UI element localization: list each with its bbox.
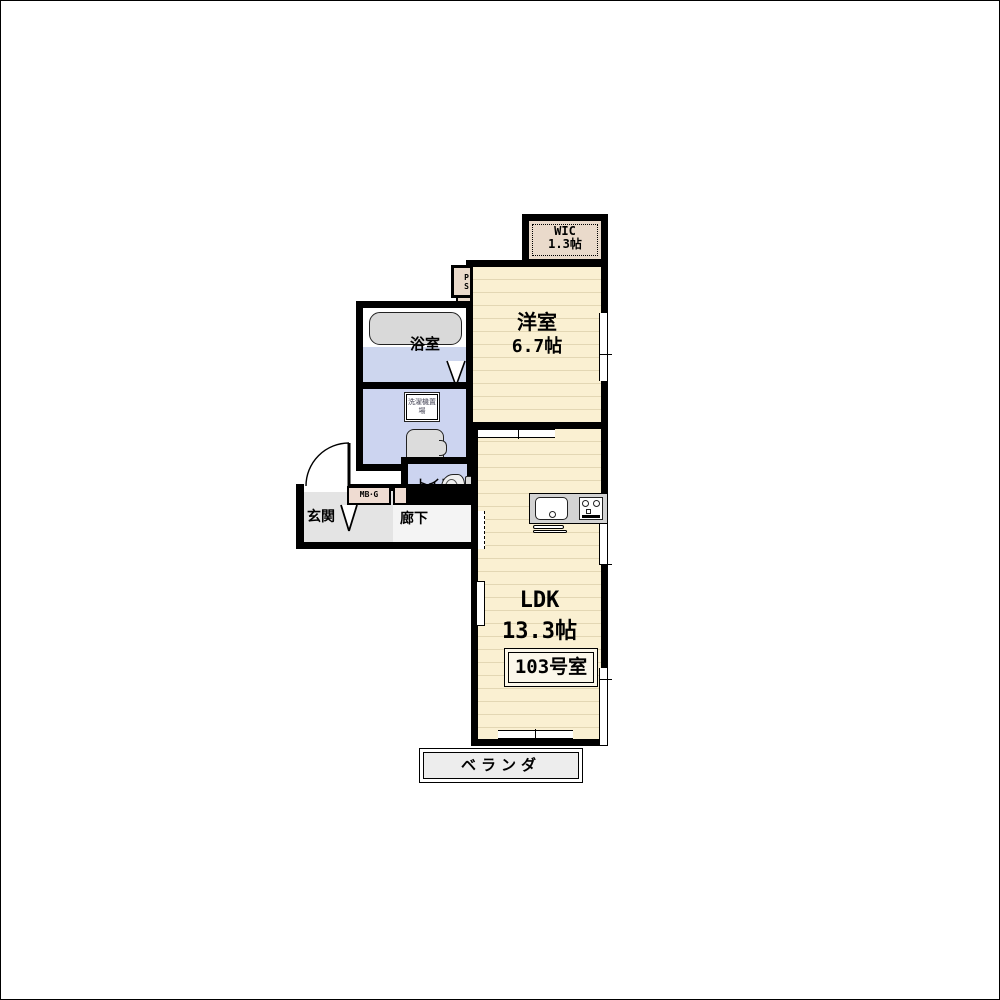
entrance-door-swing-icon xyxy=(298,441,354,487)
western-window xyxy=(599,313,608,381)
veranda-window-tick xyxy=(535,729,536,742)
room-bath: 浴室 xyxy=(356,301,473,389)
bath-label: 浴室 xyxy=(410,336,440,353)
kitchen-counter-return xyxy=(533,525,564,529)
kitchen-faucet xyxy=(549,511,556,518)
ldk-hallway-opening xyxy=(478,511,485,549)
western-room-label: 洋室 xyxy=(473,311,601,333)
veranda-label: ベランダ xyxy=(424,757,578,774)
meter-box: MB･G xyxy=(347,486,391,505)
room-ldk: LDK 13.3帖 103号室 xyxy=(471,422,608,746)
washbasin-bump xyxy=(439,440,447,456)
entrance-hall-block: MB･G 玄関 廊下 xyxy=(296,484,479,549)
shaft-box xyxy=(393,486,408,505)
laundry-label: 洗濯機置場 xyxy=(407,398,437,416)
pipe-space-box: PS xyxy=(451,265,473,298)
stove-icon xyxy=(579,497,603,520)
kitchen-counter xyxy=(529,493,608,524)
pipe-space-label: PS xyxy=(454,269,470,295)
ldk-size: 13.3帖 xyxy=(478,620,601,644)
stove-burner-left xyxy=(582,500,589,507)
sliding-door-tick xyxy=(518,426,519,439)
ldk-label: LDK xyxy=(478,589,601,613)
veranda-inner: ベランダ xyxy=(423,752,579,779)
veranda: ベランダ xyxy=(419,748,583,783)
western-room-size: 6.7帖 xyxy=(473,337,601,357)
floorplan: WIC 1.3帖 洋室 6.7帖 PS 浴室 洗濯 xyxy=(0,0,1000,1000)
unit-number-label: 103号室 xyxy=(509,657,593,678)
ldk-window-upper xyxy=(599,521,608,565)
wic-size: 1.3帖 xyxy=(529,238,601,251)
hallway-label: 廊下 xyxy=(400,512,428,527)
unit-number-inner: 103号室 xyxy=(508,652,594,683)
ldk-window-lower-tick xyxy=(600,679,612,680)
ldk-window-upper-tick xyxy=(600,564,612,565)
washing-machine-inner-border: 洗濯機置場 xyxy=(406,394,438,420)
unit-number-box: 103号室 xyxy=(504,648,598,687)
stove-burner-small xyxy=(586,509,591,514)
room-wic: WIC 1.3帖 xyxy=(522,214,608,266)
western-window-tick xyxy=(600,354,612,355)
washing-machine-icon: 洗濯機置場 xyxy=(404,392,440,422)
meter-box-label: MB･G xyxy=(349,491,389,500)
entrance-step-door-icon xyxy=(338,504,360,533)
kitchen-counter-return2 xyxy=(533,530,567,533)
room-western: 洋室 6.7帖 xyxy=(466,260,608,431)
stove-grill xyxy=(582,515,600,518)
ldk-western-sliding-door xyxy=(478,429,555,438)
stove-burner-right xyxy=(593,500,600,507)
kitchen-sink-icon xyxy=(535,497,568,520)
entrance-label: 玄関 xyxy=(307,510,335,525)
